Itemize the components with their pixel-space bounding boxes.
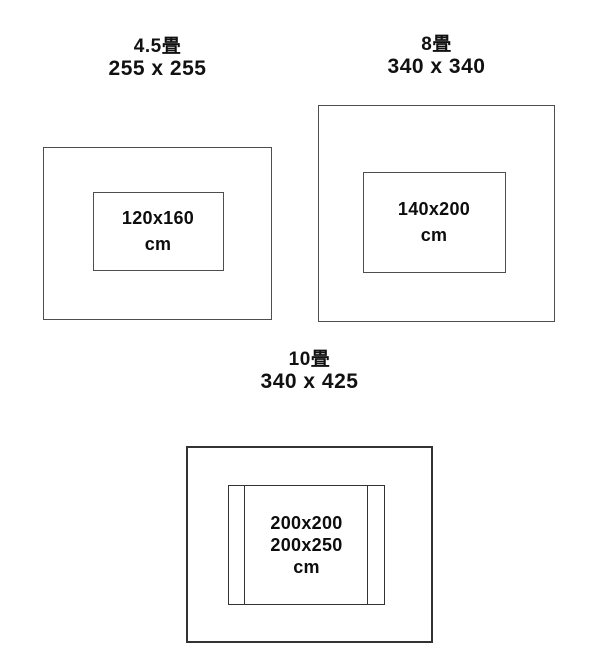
rug-outline: 140x200 cm	[363, 172, 506, 273]
rug-room-size-guide: 4.5畳 255 x 255 120x160 cm 8畳 340 x 340 1…	[0, 0, 600, 650]
rug-size-label: 200x200 200x250 cm	[270, 512, 342, 578]
rug-outline: 200x200 200x250 cm	[228, 485, 385, 605]
rug-fold-line-right	[367, 486, 368, 604]
room-dimensions-label: 340 x 425	[186, 371, 433, 393]
rug-size-line: 120x160	[122, 205, 194, 231]
rug-unit-line: cm	[398, 222, 470, 248]
room-outline: 140x200 cm	[318, 105, 555, 322]
rug-fold-line-left	[244, 486, 245, 604]
room-outline: 200x200 200x250 cm	[186, 446, 433, 643]
tatami-count-label: 4.5畳	[43, 36, 272, 58]
rug-unit-line: cm	[270, 556, 342, 578]
tatami-count-label: 10畳	[186, 349, 433, 371]
room-outline: 120x160 cm	[43, 147, 272, 320]
rug-size-label: 120x160 cm	[122, 205, 194, 257]
room-dimensions-label: 340 x 340	[318, 56, 555, 78]
room-header: 10畳 340 x 425	[186, 349, 433, 393]
rug-size-line: 200x250	[270, 534, 342, 556]
room-dimensions-label: 255 x 255	[43, 58, 272, 80]
rug-unit-line: cm	[122, 231, 194, 257]
rug-size-line: 140x200	[398, 196, 470, 222]
room-header: 4.5畳 255 x 255	[43, 36, 272, 80]
rug-size-label: 140x200 cm	[398, 196, 470, 248]
rug-outline: 120x160 cm	[93, 192, 224, 271]
rug-size-line: 200x200	[270, 512, 342, 534]
tatami-count-label: 8畳	[318, 34, 555, 56]
room-header: 8畳 340 x 340	[318, 34, 555, 78]
